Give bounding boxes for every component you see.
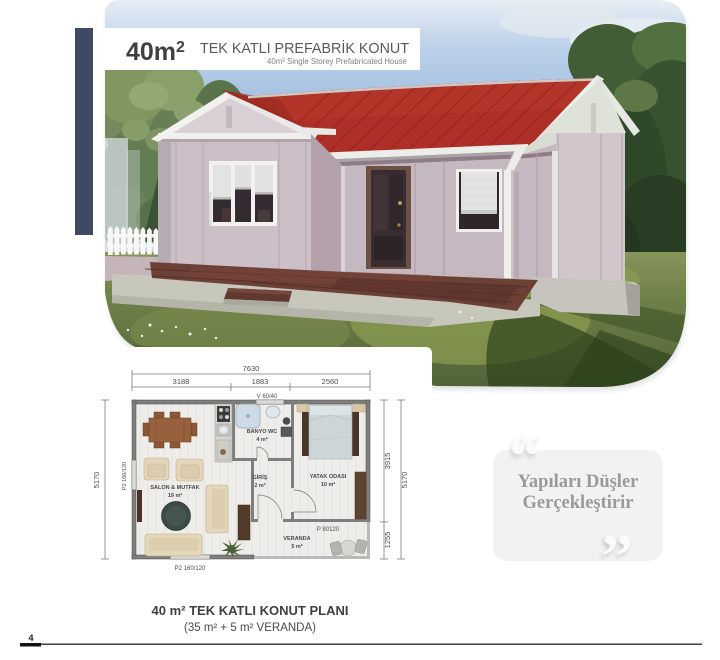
svg-text:GİRİŞ: GİRİŞ xyxy=(253,474,268,481)
svg-text:(35 m² + 5 m² VERANDA): (35 m² + 5 m² VERANDA) xyxy=(184,622,316,634)
svg-text:4: 4 xyxy=(28,633,33,643)
svg-text:3915: 3915 xyxy=(383,453,392,470)
svg-text:P2 160/120: P2 160/120 xyxy=(175,566,206,572)
svg-text:V 60/40: V 60/40 xyxy=(257,394,278,400)
svg-text:10 m²: 10 m² xyxy=(321,481,336,488)
svg-text:19 m²: 19 m² xyxy=(168,492,183,499)
svg-text:VERANDA: VERANDA xyxy=(283,536,310,542)
svg-text:”: ” xyxy=(601,521,633,592)
svg-text:P2 160/120: P2 160/120 xyxy=(122,462,128,490)
svg-text:5170: 5170 xyxy=(92,472,101,489)
svg-text:40m² Single Storey Prefabricat: 40m² Single Storey Prefabricated House xyxy=(267,56,407,66)
svg-text:5 m²: 5 m² xyxy=(291,543,302,550)
svg-text:2560: 2560 xyxy=(322,377,339,386)
svg-text:Yapıları Düşler: Yapıları Düşler xyxy=(518,472,639,492)
svg-text:BANYO WC: BANYO WC xyxy=(247,429,278,435)
svg-text:YATAK ODASI: YATAK ODASI xyxy=(310,474,347,480)
svg-text:Gerçekleştirir: Gerçekleştirir xyxy=(523,493,634,513)
svg-text:SALON & MUTFAK: SALON & MUTFAK xyxy=(150,485,199,491)
svg-text:7630: 7630 xyxy=(243,364,260,373)
svg-text:4 m²: 4 m² xyxy=(256,436,267,443)
svg-text:1883: 1883 xyxy=(252,377,269,386)
svg-text:3188: 3188 xyxy=(173,377,190,386)
svg-text:TEK KATLI PREFABRİK KONUT: TEK KATLI PREFABRİK KONUT xyxy=(200,39,409,57)
svg-text:1255: 1255 xyxy=(383,532,392,549)
svg-text:P 80120: P 80120 xyxy=(317,527,340,533)
svg-text:40 m² TEK KATLI KONUT PLANI: 40 m² TEK KATLI KONUT PLANI xyxy=(152,603,349,618)
svg-text:2 m²: 2 m² xyxy=(254,482,265,489)
svg-text:5170: 5170 xyxy=(400,472,409,489)
